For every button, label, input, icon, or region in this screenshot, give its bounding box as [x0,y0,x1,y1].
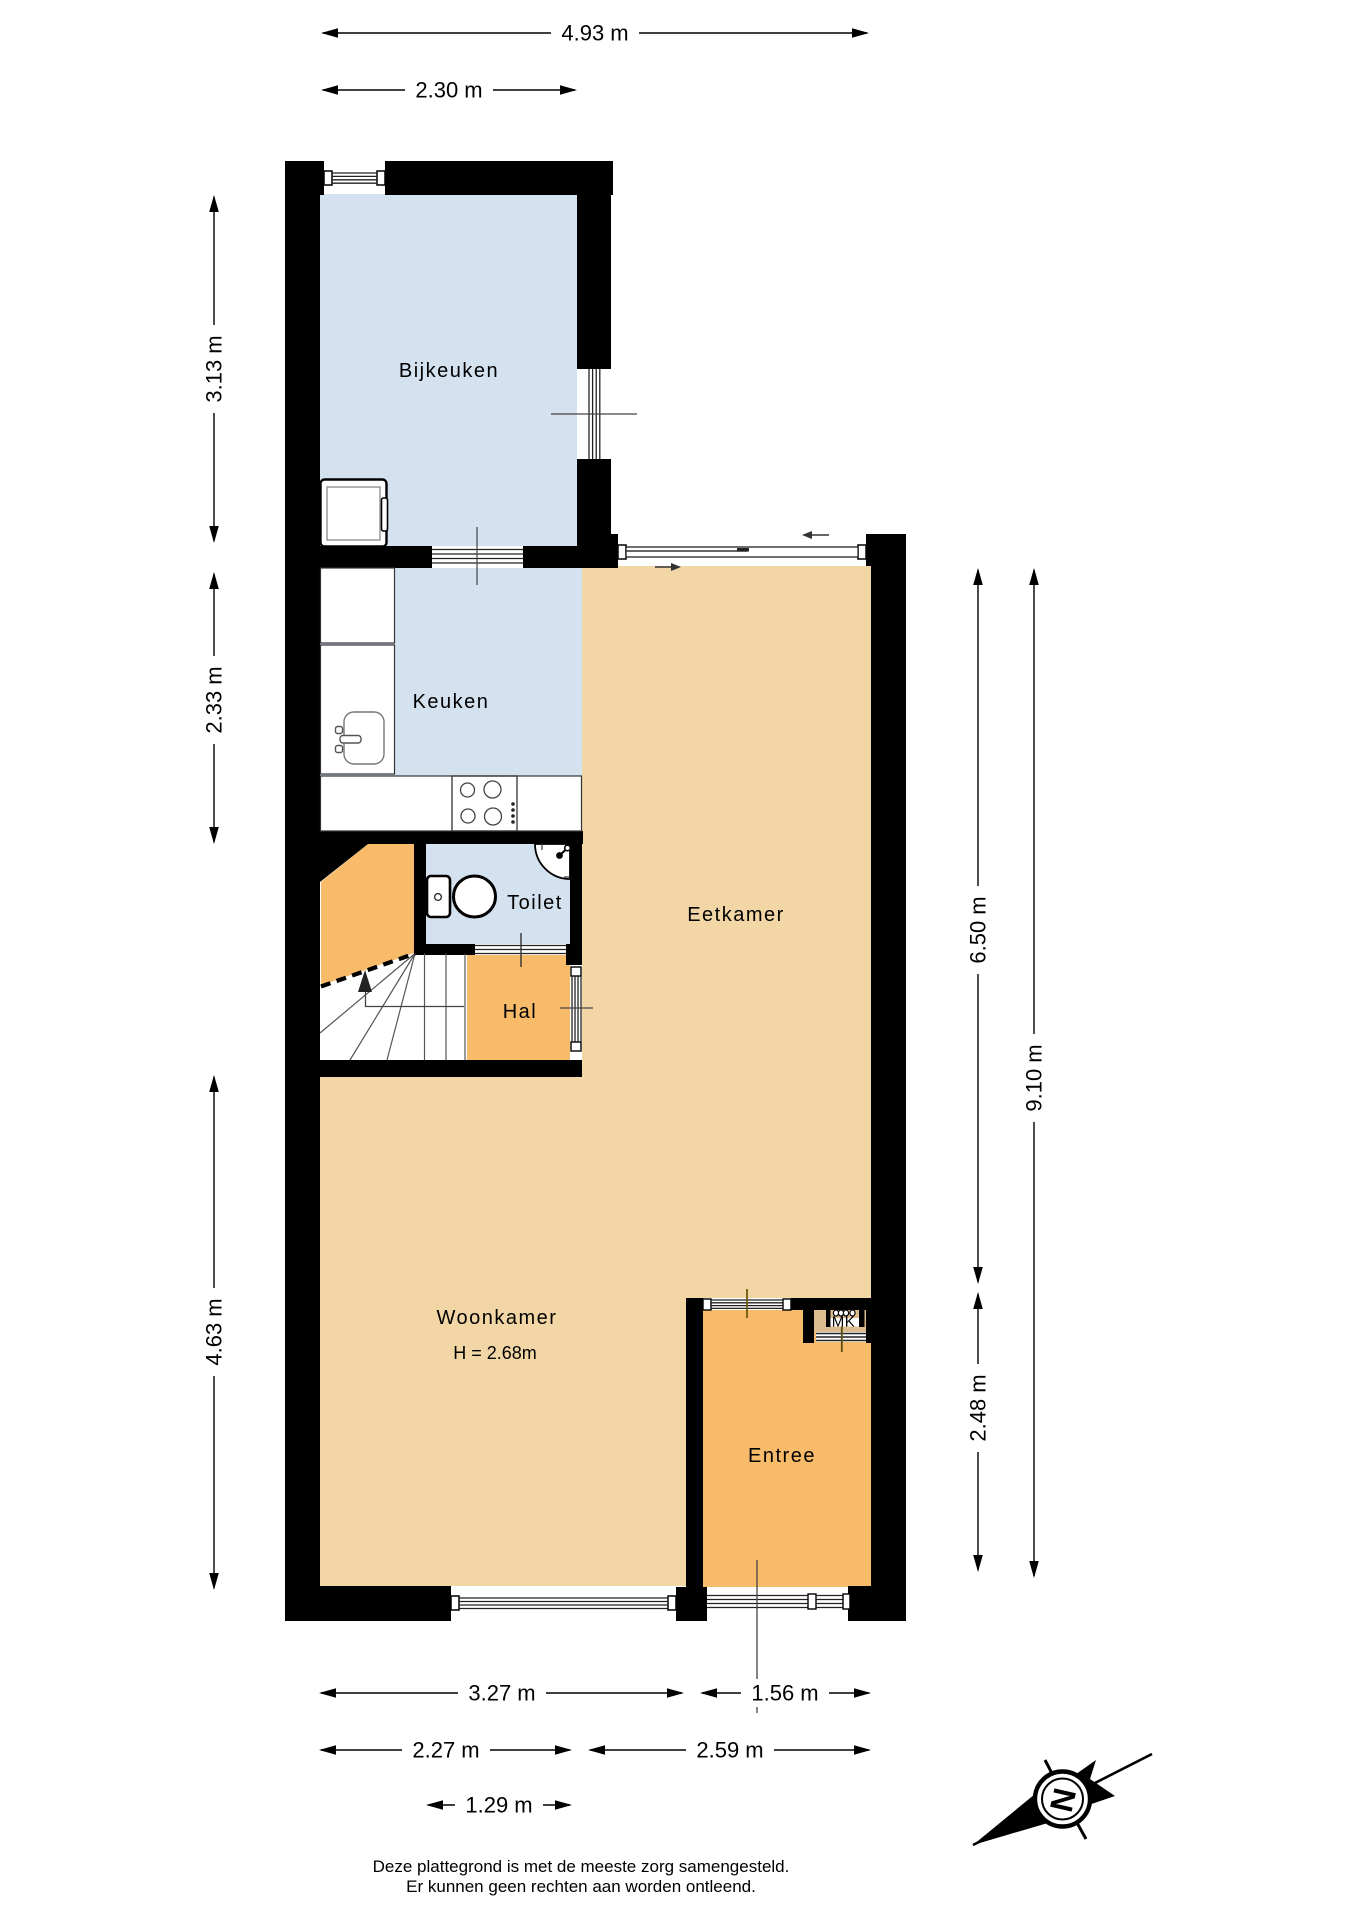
svg-text:Woonkamer: Woonkamer [437,1307,558,1329]
svg-text:9.10 m: 9.10 m [1022,1044,1047,1111]
svg-text:Bijkeuken: Bijkeuken [399,360,499,382]
svg-text:Entree: Entree [748,1445,816,1467]
svg-text:1.56 m: 1.56 m [751,1681,818,1706]
svg-text:4.93 m: 4.93 m [561,21,628,46]
svg-text:Er kunnen geen rechten aan wor: Er kunnen geen rechten aan worden ontlee… [406,1877,756,1896]
svg-text:2.33 m: 2.33 m [202,666,227,733]
svg-text:Toilet: Toilet [507,892,563,914]
svg-text:3.27 m: 3.27 m [468,1681,535,1706]
svg-text:1.29 m: 1.29 m [465,1793,532,1818]
svg-text:2.27 m: 2.27 m [412,1738,479,1763]
svg-text:Keuken: Keuken [413,691,490,713]
svg-text:2.59 m: 2.59 m [696,1738,763,1763]
svg-text:3.13 m: 3.13 m [202,335,227,402]
svg-text:2.48 m: 2.48 m [966,1374,991,1441]
svg-text:Hal: Hal [503,1001,538,1023]
svg-text:4.63 m: 4.63 m [202,1298,227,1365]
svg-text:H = 2.68m: H = 2.68m [453,1343,537,1363]
svg-text:Eetkamer: Eetkamer [687,904,785,926]
svg-text:2.30 m: 2.30 m [415,78,482,103]
svg-text:MK: MK [832,1314,856,1331]
svg-text:Deze plattegrond is met de mee: Deze plattegrond is met de meeste zorg s… [373,1857,790,1876]
svg-text:6.50 m: 6.50 m [966,896,991,963]
